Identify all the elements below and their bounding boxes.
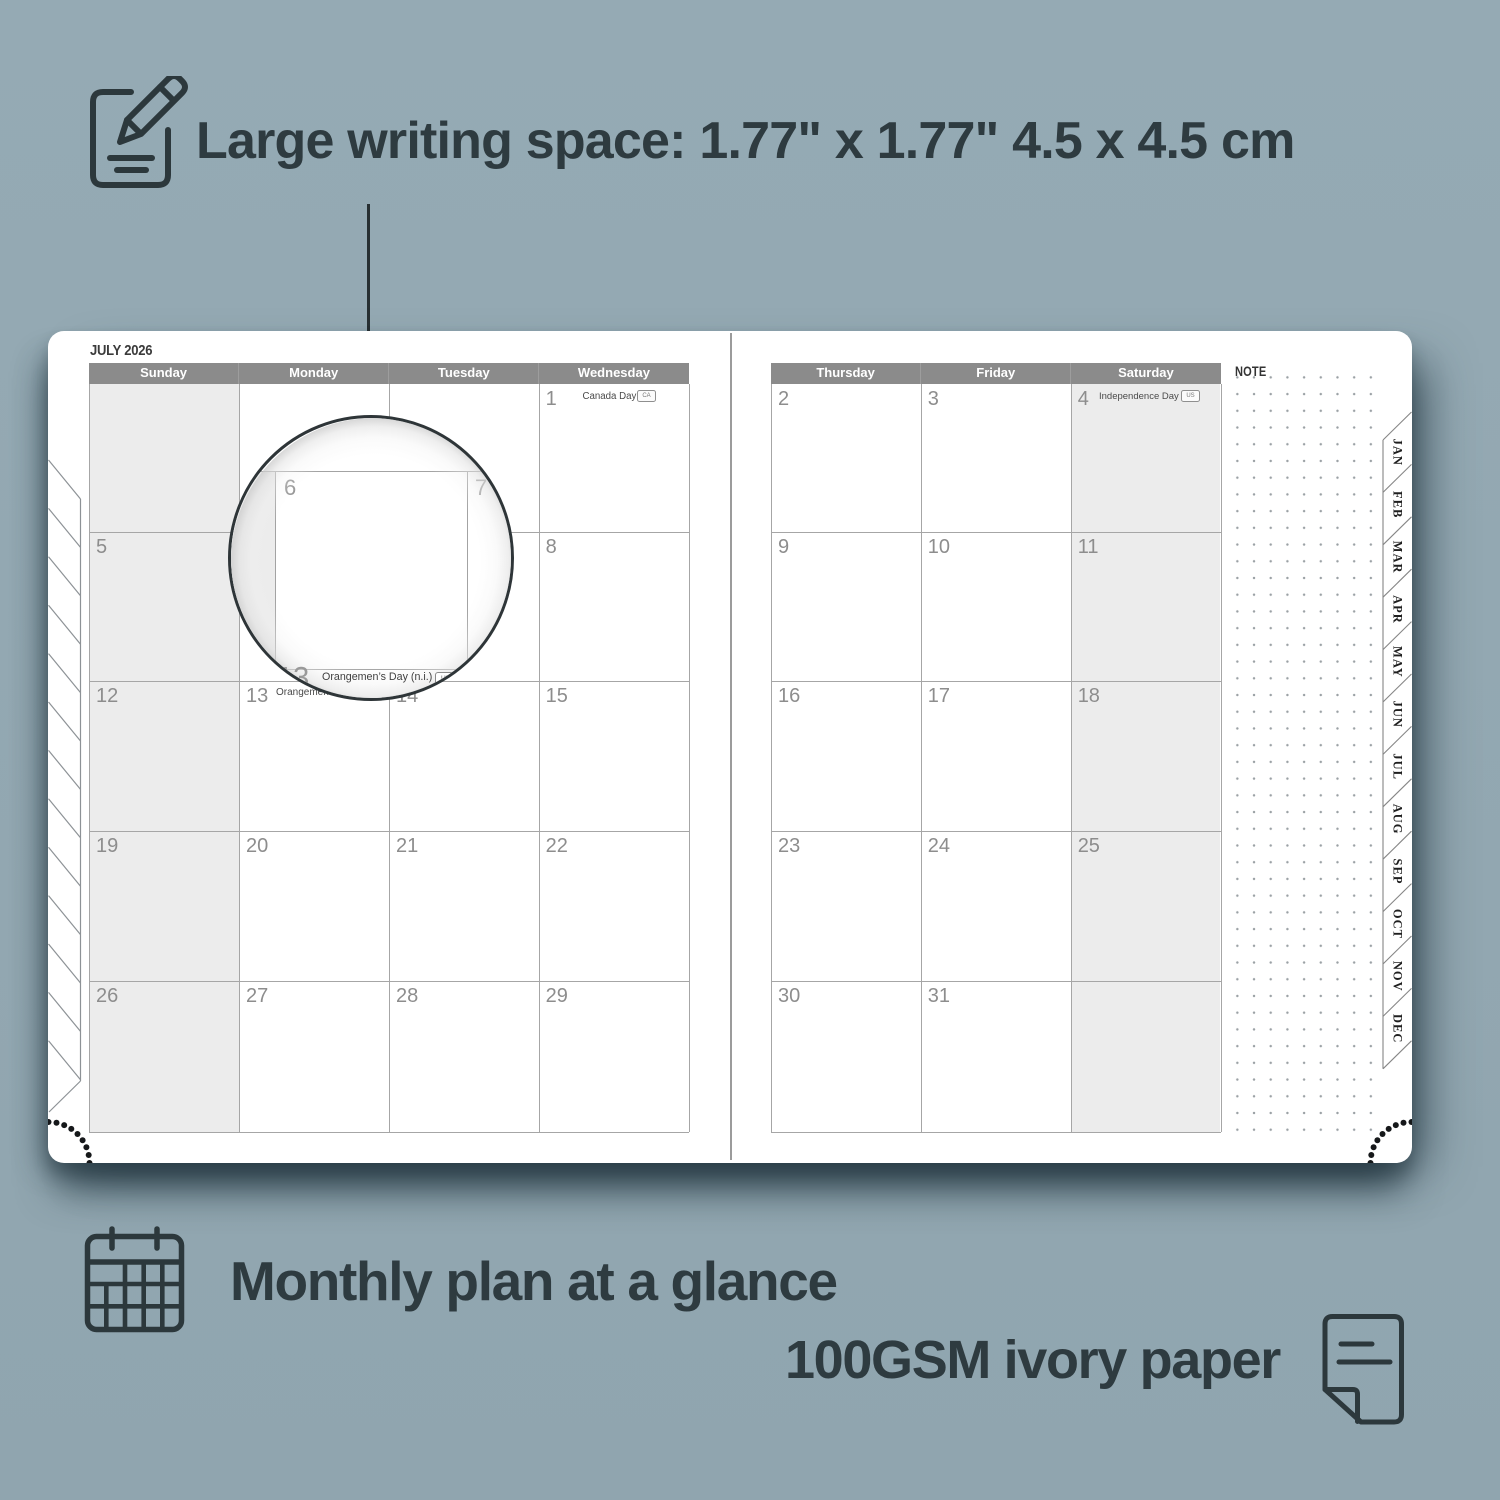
svg-text:AUG: AUG: [1391, 804, 1405, 835]
svg-text:JUL: JUL: [1391, 753, 1405, 780]
svg-text:SEP: SEP: [1391, 859, 1405, 885]
svg-text:NOV: NOV: [1391, 961, 1405, 992]
svg-text:JUN: JUN: [1391, 701, 1405, 728]
svg-text:APR: APR: [1391, 595, 1405, 624]
svg-text:DEC: DEC: [1391, 1014, 1405, 1043]
svg-text:MAR: MAR: [1391, 541, 1405, 574]
svg-text:FEB: FEB: [1391, 491, 1405, 518]
svg-text:OCT: OCT: [1391, 909, 1405, 939]
svg-text:MAY: MAY: [1391, 646, 1405, 678]
svg-text:JAN: JAN: [1391, 439, 1405, 466]
